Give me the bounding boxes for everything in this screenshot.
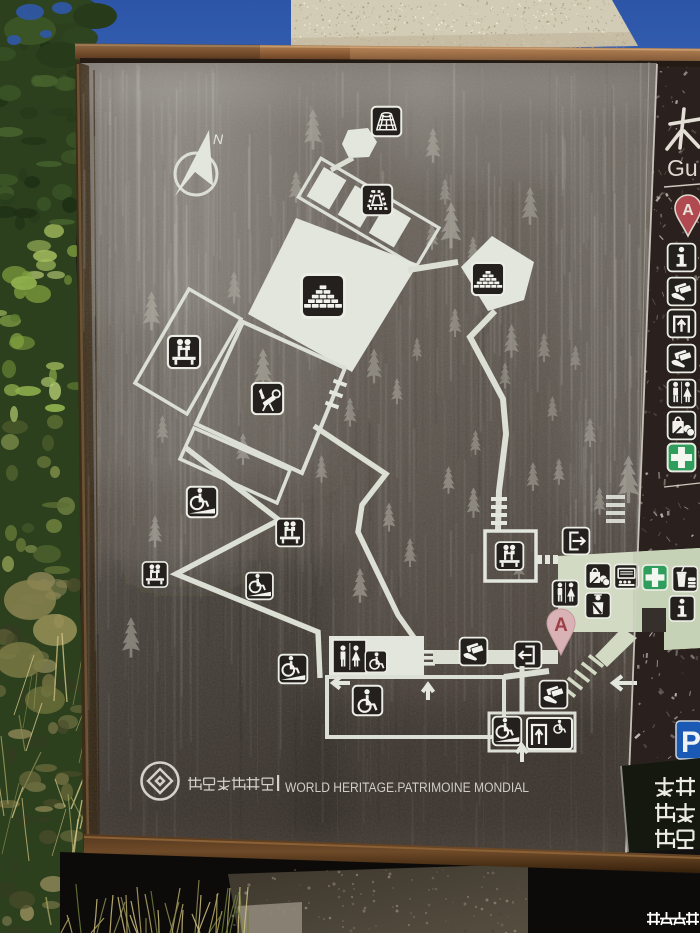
- svg-text:A: A: [682, 202, 694, 219]
- svg-text:WORLD HERITAGE.PATRIMOINE MOND: WORLD HERITAGE.PATRIMOINE MONDIAL: [285, 780, 529, 795]
- svg-text:Gu: Gu: [667, 155, 698, 181]
- svg-text:P: P: [681, 726, 700, 759]
- svg-text:A: A: [554, 615, 568, 636]
- svg-text:N: N: [213, 131, 224, 147]
